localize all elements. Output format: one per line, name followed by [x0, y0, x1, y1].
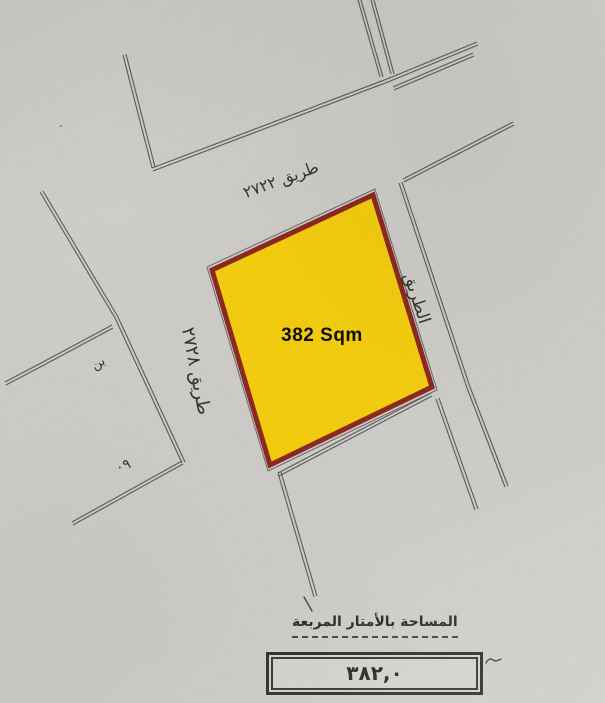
area-value-box-inner: ٣٨٢,٠: [271, 657, 478, 690]
area-title: المساحة بالأمتار المربعة: [292, 614, 458, 638]
plot-area-label: 382 Sqm: [260, 324, 384, 348]
cadastral-survey-map: طريق ٢٧٢٢ طريق ٢٧٢٨ الطريق 382 Sqm بن ٠٩…: [0, 0, 605, 703]
area-value-box: ٣٨٢,٠: [266, 652, 483, 695]
map-canvas: [0, 0, 605, 703]
area-value: ٣٨٢,٠: [273, 659, 476, 688]
